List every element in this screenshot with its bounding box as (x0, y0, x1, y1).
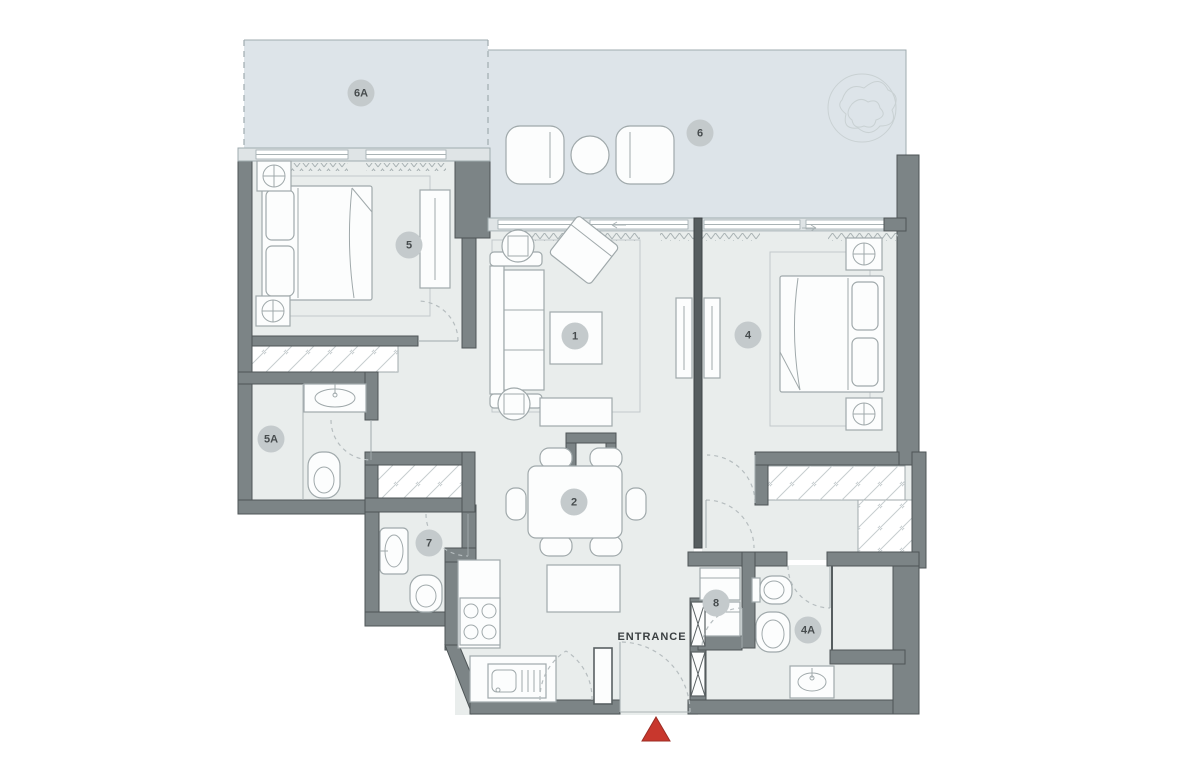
room-label-4a: 4A (795, 617, 822, 644)
bed-icon (262, 186, 372, 300)
stove-icon (460, 598, 500, 645)
room-label-6: 6 (687, 120, 714, 147)
room-label-8: 8 (703, 590, 730, 617)
side-table-icon (498, 388, 530, 420)
room-label-5: 5 (396, 232, 423, 259)
chair-icon (506, 488, 526, 520)
toilet-icon (752, 576, 792, 604)
toilet-icon (308, 452, 340, 498)
chair-icon (626, 488, 646, 520)
bed-icon (780, 276, 884, 392)
kitchen-island (547, 565, 620, 612)
sink-icon (488, 664, 546, 698)
wardrobe-icon (420, 190, 450, 288)
entrance-text: ENTRANCE (617, 631, 686, 643)
tv-bench-icon (540, 398, 612, 426)
chair-icon (540, 536, 572, 556)
room-label-5a: 5A (258, 426, 285, 453)
bidet-icon (756, 612, 790, 652)
nightstand-lamp-icon (257, 161, 291, 191)
nightstand-lamp-icon (846, 398, 882, 430)
sink-icon (790, 666, 834, 698)
floorplan-drawing (0, 0, 1200, 762)
nightstand-lamp-icon (846, 238, 882, 270)
room-label-7: 7 (416, 530, 443, 557)
room-label-6a: 6A (348, 80, 375, 107)
sink-icon (380, 528, 408, 574)
toilet-icon (410, 575, 442, 612)
entrance-marker-icon (642, 717, 670, 741)
sofa-icon (490, 252, 544, 408)
chair-icon (590, 448, 622, 468)
room-label-1: 1 (562, 323, 589, 350)
chair-icon (590, 536, 622, 556)
floorplan-page: 6A 6 5 1 4 5A 2 7 8 4A ENTRANCE (0, 0, 1200, 762)
room-label-2: 2 (561, 489, 588, 516)
partition-wall (694, 218, 702, 548)
tall-cabinet (594, 648, 612, 704)
side-table-icon (502, 230, 534, 262)
chair-icon (540, 448, 572, 468)
sink-icon (304, 384, 366, 412)
nightstand-lamp-icon (256, 296, 290, 326)
room-label-4: 4 (735, 322, 762, 349)
